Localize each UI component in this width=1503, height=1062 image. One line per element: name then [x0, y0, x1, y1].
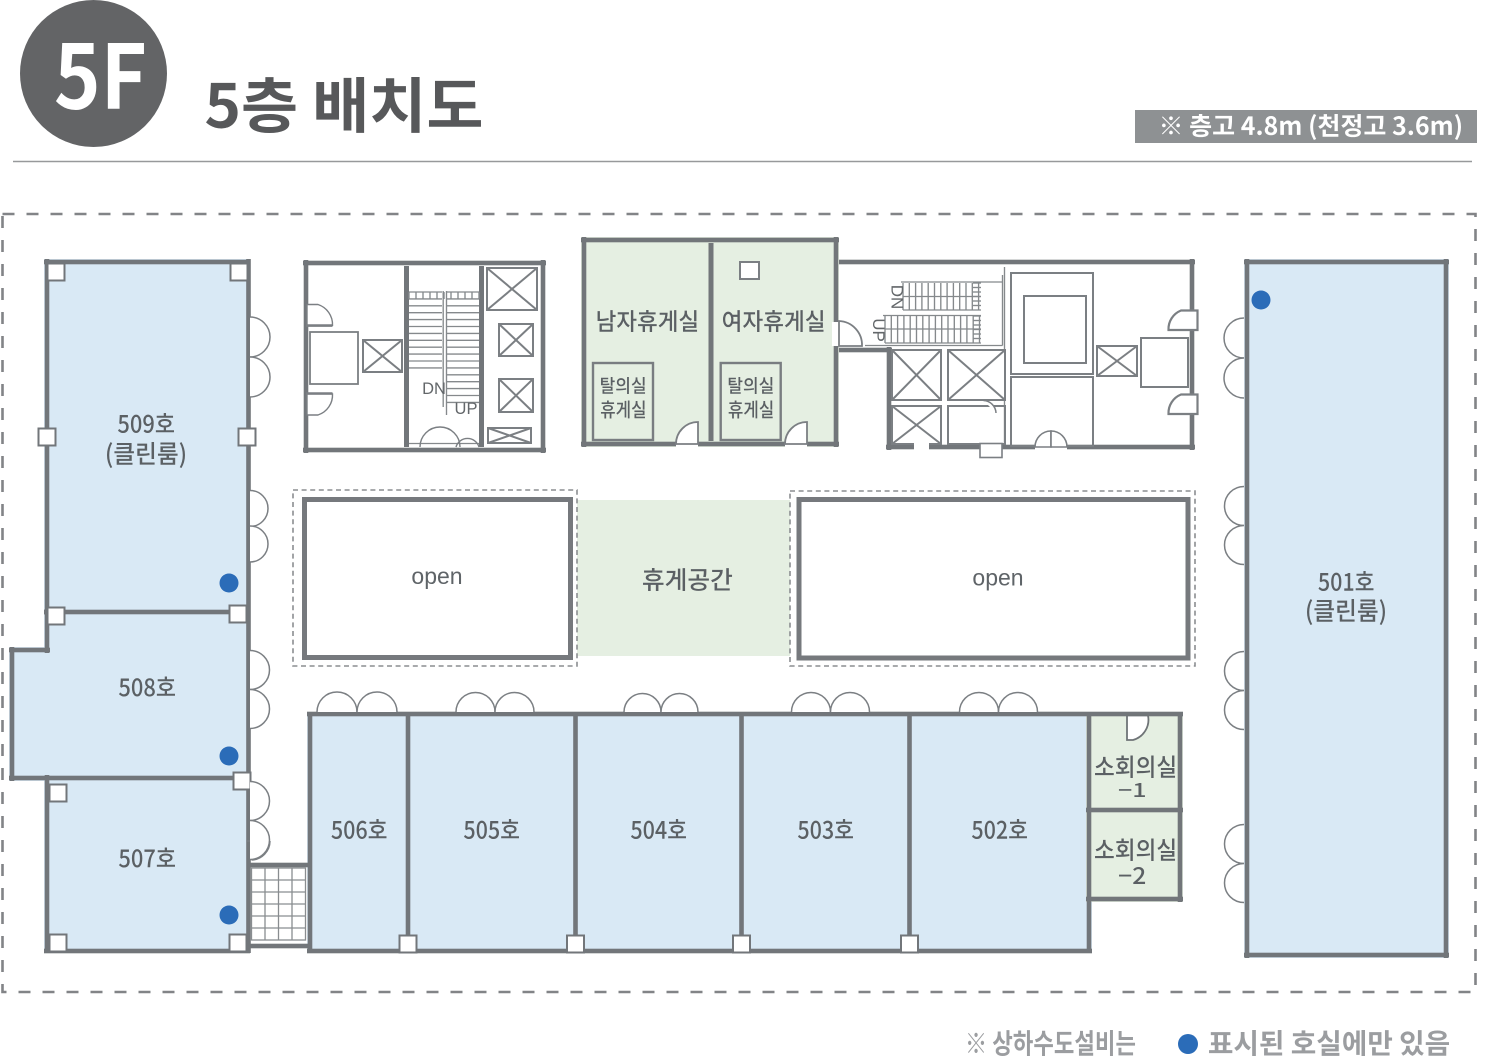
- svg-text:open: open: [411, 563, 462, 589]
- svg-text:UP: UP: [869, 318, 888, 342]
- svg-text:UP: UP: [455, 400, 478, 418]
- svg-text:DN: DN: [422, 380, 446, 398]
- svg-text:DN: DN: [888, 285, 907, 310]
- svg-text:open: open: [972, 565, 1023, 591]
